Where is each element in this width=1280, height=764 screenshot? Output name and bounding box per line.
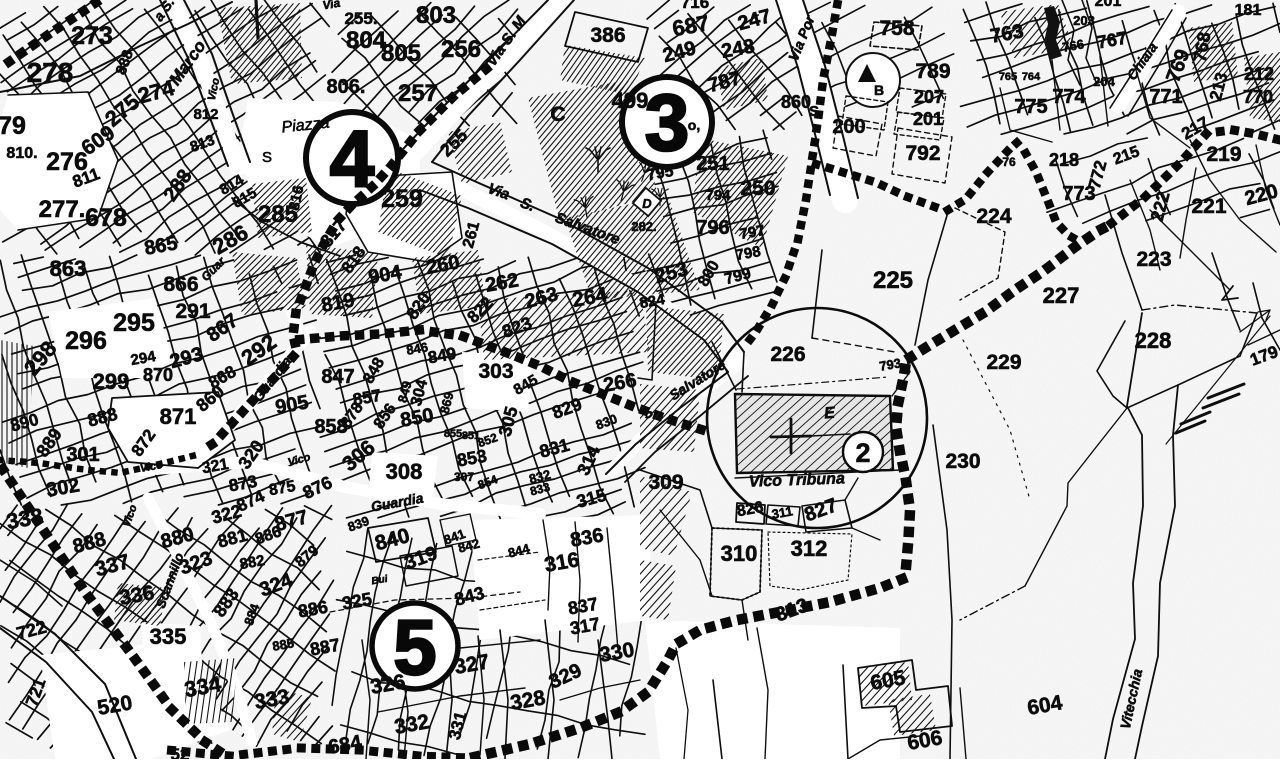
svg-text:52: 52 [171, 745, 190, 759]
svg-text:282.: 282. [631, 219, 656, 234]
svg-text:770: 770 [1243, 87, 1273, 107]
svg-text:871: 871 [160, 404, 197, 429]
svg-text:D: D [642, 196, 652, 211]
svg-text:S: S [809, 103, 819, 120]
svg-text:863: 863 [50, 256, 87, 281]
svg-text:3: 3 [645, 78, 690, 167]
svg-text:308: 308 [386, 459, 423, 484]
svg-text:775: 775 [1014, 96, 1047, 118]
svg-text:805: 805 [381, 40, 421, 67]
svg-text:219: 219 [1206, 143, 1241, 166]
svg-text:312: 312 [791, 536, 828, 561]
svg-text:273: 273 [71, 22, 113, 50]
svg-text:870: 870 [143, 365, 173, 385]
svg-text:278: 278 [27, 57, 74, 88]
svg-text:255.: 255. [344, 9, 377, 28]
svg-text:810.: 810. [6, 145, 37, 162]
svg-text:310: 310 [721, 541, 758, 566]
svg-text:277.: 277. [39, 196, 86, 223]
svg-text:257: 257 [398, 80, 438, 107]
svg-text:307: 307 [454, 470, 474, 484]
svg-text:309: 309 [648, 471, 683, 494]
svg-text:301: 301 [66, 444, 99, 466]
svg-text:773: 773 [1062, 183, 1095, 205]
svg-text:181: 181 [1235, 2, 1262, 19]
svg-text:678: 678 [85, 204, 127, 232]
svg-text:79: 79 [0, 112, 26, 140]
svg-text:229: 229 [986, 351, 1021, 374]
svg-text:201: 201 [913, 109, 943, 129]
svg-text:204: 204 [1093, 74, 1115, 89]
svg-text:855: 855 [444, 428, 462, 440]
svg-text:o,: o, [688, 117, 700, 133]
svg-text:765: 765 [999, 71, 1017, 83]
svg-text:291: 291 [175, 300, 210, 323]
svg-text:B: B [874, 82, 884, 98]
svg-text:4: 4 [330, 114, 375, 203]
svg-text:499: 499 [612, 88, 649, 113]
svg-text:771: 771 [1149, 86, 1182, 108]
svg-text:796: 796 [696, 217, 729, 239]
svg-text:335: 335 [150, 624, 187, 649]
svg-text:227: 227 [1043, 283, 1080, 308]
svg-text:386: 386 [590, 24, 625, 47]
svg-text:2: 2 [855, 438, 870, 468]
svg-text:794: 794 [705, 187, 731, 204]
svg-text:251: 251 [696, 153, 729, 175]
svg-text:774: 774 [1052, 86, 1086, 108]
svg-text:295: 295 [113, 309, 155, 337]
svg-text:303: 303 [478, 360, 513, 383]
svg-text:Vico Tribuna: Vico Tribuna [749, 470, 846, 490]
svg-text:764: 764 [1022, 71, 1041, 83]
svg-text:256: 256 [441, 36, 481, 63]
svg-text:296: 296 [65, 327, 107, 355]
svg-text:207: 207 [914, 87, 944, 107]
svg-text:792: 792 [905, 142, 940, 165]
svg-text:812: 812 [193, 106, 218, 123]
svg-text:C: C [550, 103, 565, 126]
svg-text:806.: 806. [327, 76, 366, 98]
svg-text:221: 221 [1191, 195, 1226, 218]
svg-text:203: 203 [1073, 13, 1095, 28]
svg-text:716: 716 [681, 0, 709, 12]
svg-text:847: 847 [321, 366, 354, 388]
svg-text:S: S [262, 149, 272, 166]
svg-text:224: 224 [976, 205, 1011, 228]
svg-text:259: 259 [381, 185, 423, 213]
svg-text:218: 218 [1049, 150, 1079, 170]
svg-text:76: 76 [1002, 155, 1016, 169]
svg-text:223: 223 [1136, 248, 1171, 271]
svg-text:250: 250 [740, 177, 775, 200]
svg-text:803: 803 [416, 2, 456, 29]
svg-text:789: 789 [915, 60, 950, 83]
svg-text:201: 201 [1095, 0, 1122, 10]
svg-text:860: 860 [781, 92, 811, 112]
svg-text:200: 200 [832, 116, 865, 138]
svg-text:758: 758 [879, 17, 914, 40]
svg-text:225: 225 [873, 267, 913, 294]
svg-text:299: 299 [93, 369, 130, 394]
svg-text:866: 866 [163, 273, 198, 296]
svg-text:226: 226 [770, 343, 805, 366]
svg-text:230: 230 [945, 450, 980, 473]
svg-text:228: 228 [1135, 328, 1172, 353]
svg-text:212: 212 [1244, 64, 1274, 84]
